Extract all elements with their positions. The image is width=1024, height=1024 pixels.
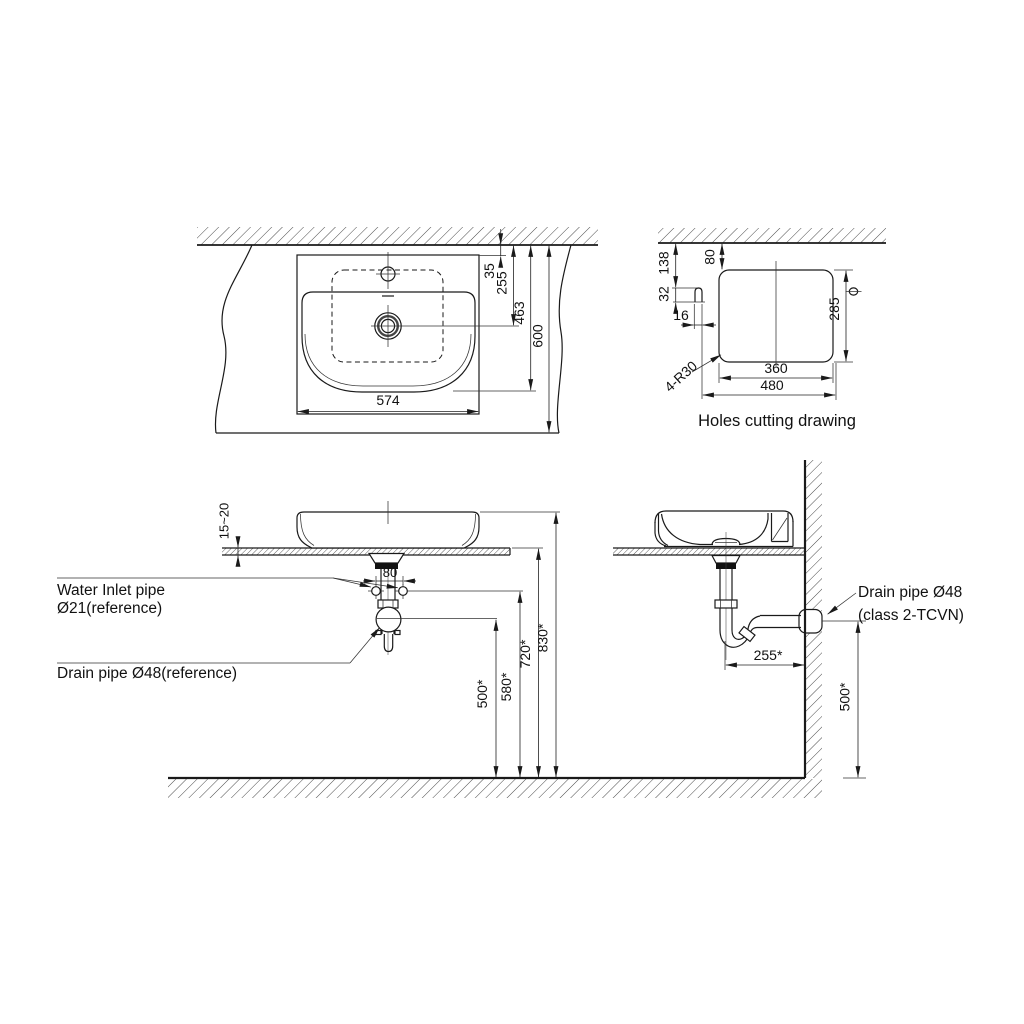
water-inlet-label-1: Water Inlet pipe bbox=[57, 582, 165, 599]
dim-80-inlets: 80 bbox=[363, 565, 416, 585]
dim-label-15-20: 15~20 bbox=[217, 503, 232, 540]
dim-500-front: 500* bbox=[474, 620, 496, 777]
drain-flange bbox=[369, 554, 404, 564]
drawing-page: 35 255 463 600 574 138 bbox=[0, 0, 1024, 1024]
plan-view: 35 255 463 600 574 bbox=[197, 227, 598, 433]
dim-label-285: 285 bbox=[826, 297, 842, 321]
basin-section bbox=[655, 511, 793, 547]
dim-label-463: 463 bbox=[511, 301, 527, 325]
radius-callout: 4-R30 bbox=[661, 355, 721, 395]
side-elevation-view: 255* 500* Drain pipe Ø48 (class 2-TCVN) bbox=[613, 460, 964, 778]
dim-480: 480 bbox=[703, 377, 835, 395]
front-elevation-view: 15~20 80 bbox=[57, 501, 560, 777]
supply-stub bbox=[695, 288, 702, 302]
dim-label-255: 255* bbox=[754, 647, 783, 663]
dim-label-138: 138 bbox=[656, 251, 672, 275]
dim-label-500: 500* bbox=[837, 682, 853, 711]
drain-wall-label-2: (class 2-TCVN) bbox=[858, 607, 964, 624]
inlet-right bbox=[399, 587, 408, 596]
dim-830: 830* bbox=[535, 513, 557, 777]
dim-label-500: 500* bbox=[474, 679, 490, 708]
counter-slab bbox=[222, 548, 510, 555]
dim-label-830: 830* bbox=[535, 623, 551, 652]
holes-cutting-view: 138 32 16 80 285 bbox=[656, 228, 887, 430]
dim-463: 463 bbox=[511, 246, 531, 390]
inlet-left bbox=[372, 587, 381, 596]
dim-label-574: 574 bbox=[376, 392, 400, 408]
dim-label-32: 32 bbox=[656, 286, 672, 302]
radius-label: 4-R30 bbox=[661, 357, 700, 395]
dim-500-side: 500* bbox=[822, 621, 866, 778]
drain-pipe-label: Drain pipe Ø48(reference) bbox=[57, 665, 237, 682]
dim-label-360: 360 bbox=[764, 360, 788, 376]
floor-hatch bbox=[168, 779, 822, 798]
drain-pipe-wall-callout: Drain pipe Ø48 (class 2-TCVN) bbox=[828, 584, 964, 624]
dim-15-20: 15~20 bbox=[217, 503, 239, 566]
break-line-left bbox=[215, 245, 252, 433]
dim-138: 138 bbox=[656, 244, 676, 287]
wall-pipe-socket bbox=[799, 610, 822, 634]
drain-pipe-callout: Drain pipe Ø48(reference) bbox=[57, 628, 380, 682]
side-hole-marker bbox=[846, 288, 862, 295]
counter-slab bbox=[613, 548, 805, 555]
tail-pipe-end bbox=[384, 646, 392, 652]
dim-label-720: 720* bbox=[517, 639, 533, 668]
dim-label-80: 80 bbox=[702, 249, 718, 265]
dim-label-80: 80 bbox=[383, 565, 397, 580]
view-caption: Holes cutting drawing bbox=[698, 412, 856, 430]
water-inlet-callout: Water Inlet pipe Ø21(reference) bbox=[57, 578, 398, 617]
dim-600: 600 bbox=[530, 246, 550, 432]
trap-body bbox=[376, 607, 401, 632]
dim-label-600: 600 bbox=[530, 324, 546, 348]
dim-360: 360 bbox=[720, 360, 832, 378]
dim-80: 80 bbox=[702, 244, 723, 269]
technical-drawing: 35 255 463 600 574 138 bbox=[0, 0, 1024, 1024]
coupling-nut bbox=[715, 600, 737, 608]
dim-label-480: 480 bbox=[760, 377, 784, 393]
dim-255-side: 255* bbox=[725, 641, 804, 670]
dim-580: 580* bbox=[498, 592, 520, 777]
drain-wall-label-1: Drain pipe Ø48 bbox=[858, 584, 962, 601]
break-line-right bbox=[557, 245, 571, 433]
wall-hatch bbox=[658, 228, 886, 243]
dim-label-580: 580* bbox=[498, 672, 514, 701]
wall-hatch bbox=[197, 227, 598, 245]
water-inlet-label-2: Ø21(reference) bbox=[57, 600, 162, 617]
dim-label-16: 16 bbox=[673, 307, 689, 323]
floor bbox=[168, 778, 822, 798]
dim-label-255: 255 bbox=[494, 271, 510, 295]
